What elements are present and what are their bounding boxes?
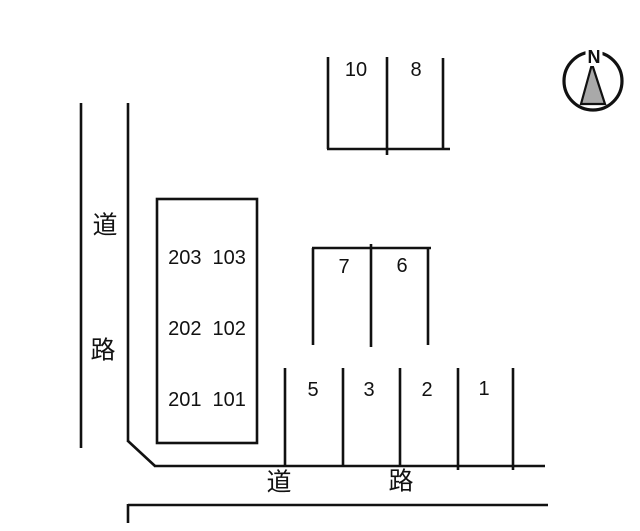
layout-lines xyxy=(0,0,640,531)
parking-space-number: 1 xyxy=(478,379,489,399)
parking-space-number: 8 xyxy=(410,60,421,80)
room-number: 202 xyxy=(168,319,201,339)
left-road-label-top: 道 xyxy=(92,214,117,239)
building-room-row: 201 101 xyxy=(168,390,246,410)
parking-space-number: 10 xyxy=(345,60,367,80)
building-room-row: 202 102 xyxy=(168,319,246,339)
room-number: 102 xyxy=(213,319,246,339)
room-number: 203 xyxy=(168,248,201,268)
parking-space-number: 5 xyxy=(307,380,318,400)
parking-space-number: 3 xyxy=(363,380,374,400)
parking-space-number: 7 xyxy=(338,257,349,277)
room-number: 201 xyxy=(168,390,201,410)
parking-space-number: 6 xyxy=(396,256,407,276)
bottom-road-label-left: 道 xyxy=(266,471,291,496)
room-number: 101 xyxy=(213,390,246,410)
building-room-row: 203 103 xyxy=(168,248,246,268)
parking-layout-diagram: N 道 路 道 路 203 103 202 102 201 101 10 8 7… xyxy=(0,0,640,531)
compass-north-label: N xyxy=(586,48,603,66)
bottom-road-label-right: 路 xyxy=(388,470,413,495)
corner-diagonal-line xyxy=(128,441,155,466)
left-road-label-bottom: 路 xyxy=(90,339,115,364)
parking-space-number: 2 xyxy=(421,380,432,400)
room-number: 103 xyxy=(213,248,246,268)
